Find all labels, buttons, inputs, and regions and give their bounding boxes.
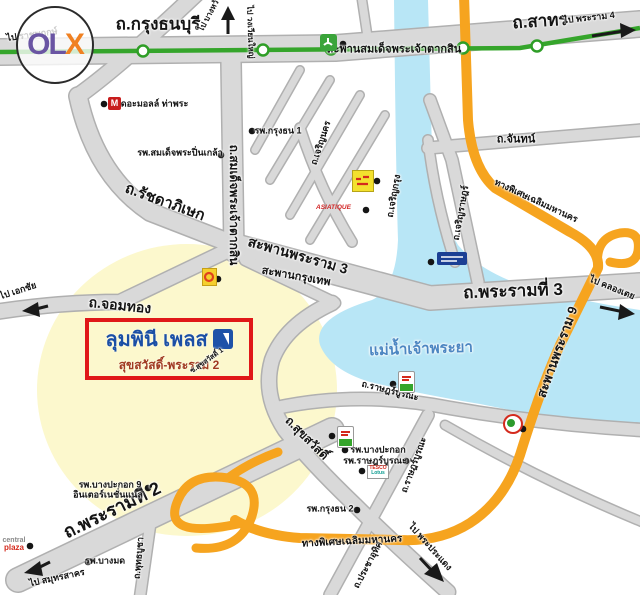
the-mall-icon: M (108, 97, 121, 110)
label-krungthon2-hospital: รพ.กรุงธน 2 (306, 505, 353, 514)
landmark-tree-icon (503, 414, 523, 434)
landmark-yellow-icon (352, 170, 374, 192)
label-krungthon1-hospital: รพ.กรุงธน 1 (254, 127, 301, 136)
property-name: ลุมพินี เพลส (105, 323, 232, 355)
label-bangpakok9-hospital-2: อินเตอร์เนชั่นแนล (73, 491, 143, 500)
landmark-orange-icon (202, 268, 217, 286)
label-chan-rd: ถ.จันทน์ (497, 135, 535, 146)
label-taksin-rd: ถ.สมเด็จพระเจ้าตากสิน (228, 145, 240, 266)
label-taksin-bts-bridge: สะพานสมเด็จพระเจ้าตากสิน (327, 45, 462, 56)
label-bangmot-hospital: รพ.บางมด (85, 557, 125, 566)
bts-station-circle (258, 45, 269, 56)
plaza-text: plaza (0, 544, 28, 552)
bigc-icon (398, 371, 415, 393)
map: ลุมพินี เพลส สุขสวัสดิ์-พระราม 2 M ASIAT… (0, 0, 640, 595)
label-rama3-rd: ถ.พระรามที่ 3 (463, 281, 563, 301)
label-krungthonburi-rd: ถ.กรุงธนบุรี (116, 16, 201, 33)
olx-letter-x: X (65, 30, 83, 60)
central-plaza-logo: central plaza (0, 537, 28, 552)
property-highlight-box: ลุมพินี เพลส สุขสวัสดิ์-พระราม 2 (85, 318, 253, 380)
tesco-lotus-icon: TESCO Lotus (367, 465, 389, 479)
lotus-text: Lotus (368, 471, 388, 476)
label-bangpakok9-hospital-1: รพ.บางปะกอก 9 (79, 481, 142, 490)
olx-watermark-logo: O L X (16, 6, 94, 84)
asiatique-logo: ASIATIQUE (316, 205, 351, 212)
label-bangpakok-hospital: รพ.บางปะกอก (350, 446, 405, 455)
label-to-wongwianyai: ไป วงเวียนใหญ่ (245, 5, 255, 58)
bts-station-circle (532, 41, 543, 52)
bts-station-circle (138, 46, 149, 57)
olx-letter-o: O (27, 30, 48, 60)
chaophraya-river-shape (319, 0, 640, 436)
label-sathorn-rd: ถ.สาทร (512, 11, 568, 32)
lpn-logo (213, 329, 233, 349)
landmark-blue-sign-icon (437, 252, 467, 265)
pier-icon (320, 34, 337, 51)
label-chaophraya-river: แม่น้ำเจ้าพระยา (369, 340, 473, 359)
label-the-mall-thapra: เดอะมอลล์ ท่าพระ (118, 100, 189, 109)
property-name-text: ลุมพินี เพลส (105, 323, 207, 355)
bigc-icon (337, 426, 354, 448)
olx-letter-l: L (49, 30, 65, 60)
label-pinklao-hospital: รพ.สมเด็จพระปิ่นเกล้า (137, 149, 222, 158)
